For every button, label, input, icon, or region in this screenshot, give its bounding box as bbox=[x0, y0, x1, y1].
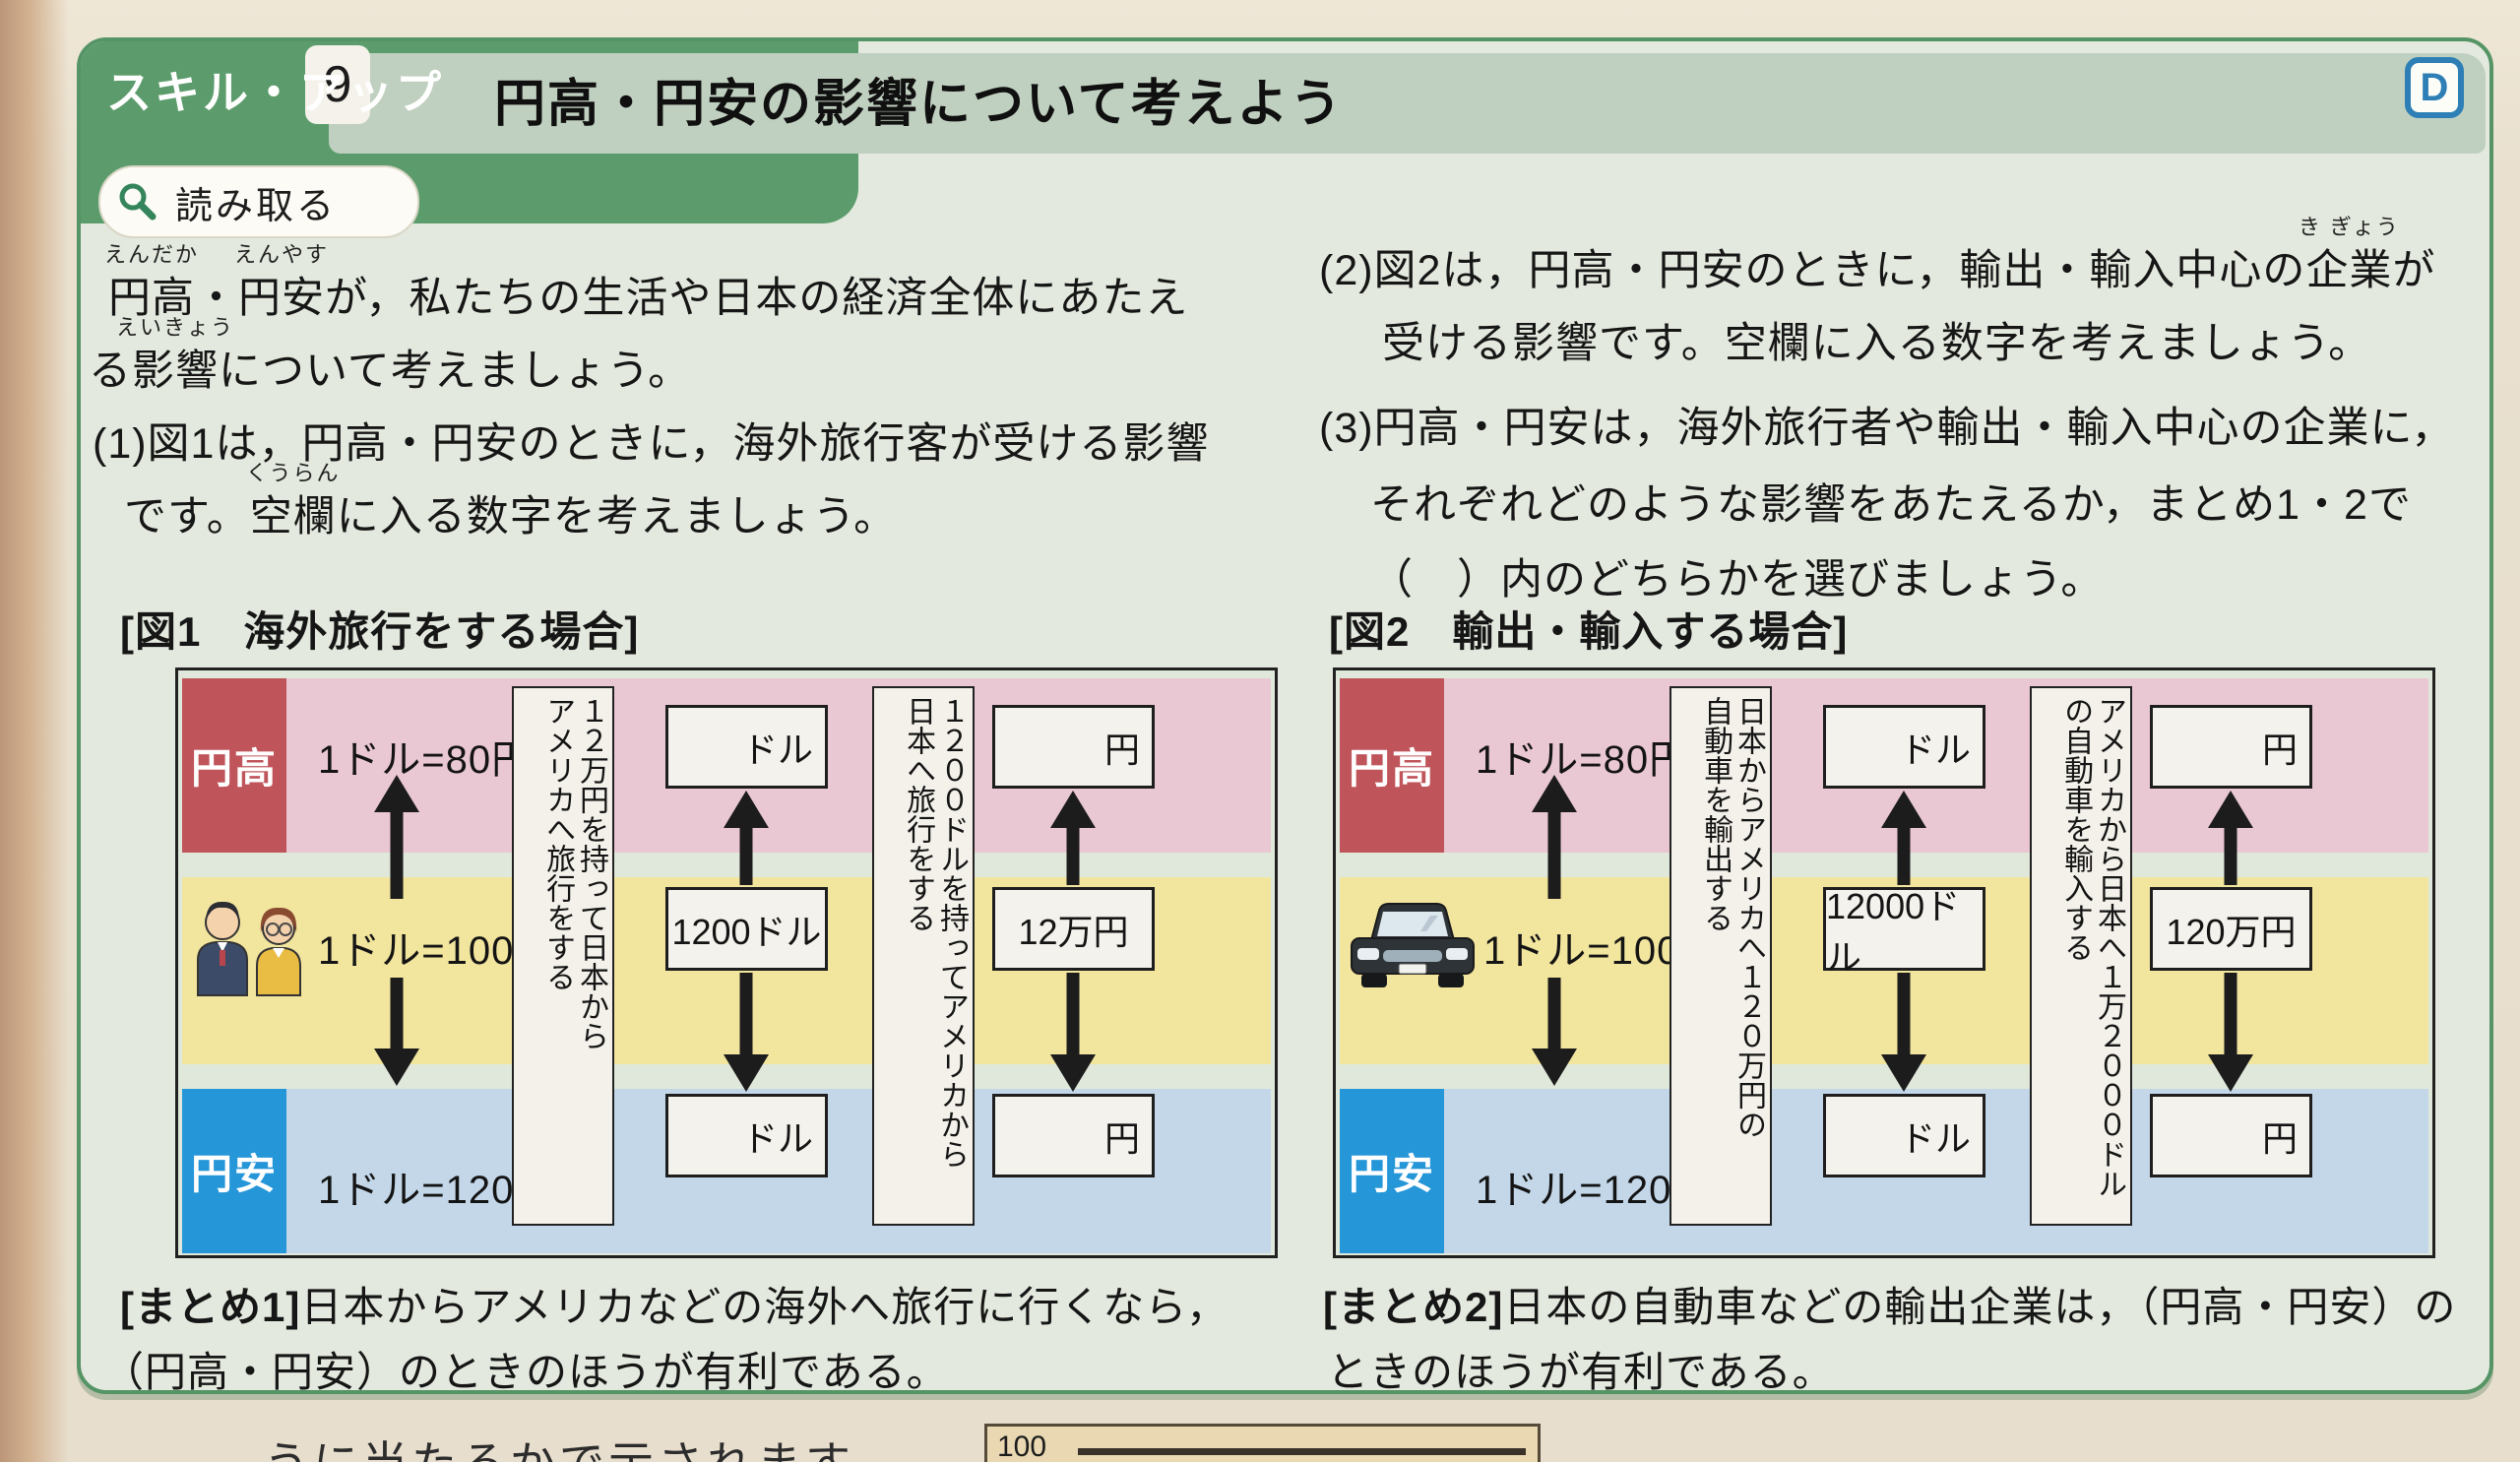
digital-content-letter: D bbox=[2421, 66, 2449, 110]
fig2-yen-blank-high: 円 bbox=[2150, 705, 2312, 789]
page-edge-shadow bbox=[0, 0, 69, 1462]
down-arrow-icon bbox=[374, 978, 419, 1086]
summary1-tag: [まとめ1] bbox=[120, 1284, 300, 1330]
summary2-line-1: [まとめ2]日本の自動車などの輸出企業は，（円高・円安）の bbox=[1323, 1274, 2456, 1334]
fig1-yen-blank-low: 円 bbox=[992, 1094, 1155, 1177]
fig2-yen-low-label: 円安 bbox=[1340, 1089, 1444, 1253]
fig1-yen-low-label: 円安 bbox=[182, 1089, 286, 1253]
skill-up-panel: 9 スキル・アップ 円高・円安の影響について考えよう 読み取る D えんだか円高… bbox=[77, 37, 2493, 1394]
ruby-kigyou: き ぎょう企業 bbox=[2305, 236, 2392, 297]
fig2-rate-80: 1ドル=80円 bbox=[1476, 728, 1689, 785]
page-title: 円高・円安の影響について考えよう bbox=[494, 53, 1343, 154]
summary1-line-2: （円高・円安）のときのほうが有利である。 bbox=[102, 1339, 949, 1399]
fig1-strip2-col2: 日本へ旅行をする bbox=[902, 696, 932, 1216]
fig1-dollar-blank-high: ドル bbox=[665, 705, 828, 789]
fig2-strip2-col1: アメリカから日本へ１万２０００ドル bbox=[2093, 696, 2123, 1216]
fig1-outbound-trip-strip: １２万円を持って日本から アメリカへ旅行をする bbox=[512, 686, 614, 1226]
digital-content-icon: D bbox=[2405, 57, 2464, 118]
ruby-kuuran: くうらん空欄 bbox=[250, 482, 337, 543]
magnifier-icon bbox=[116, 180, 159, 223]
question2-line-1: (2)図2は，円高・円安のときに，輸出・輸入中心のき ぎょう企業が bbox=[1319, 236, 2435, 297]
ruby-eikyou: えいきょう影響 bbox=[132, 337, 219, 398]
fig2-dollar-blank-high: ドル bbox=[1823, 705, 1985, 789]
fig1-yen-blank-high: 円 bbox=[992, 705, 1155, 789]
read-tool-pill: 読み取る bbox=[98, 165, 419, 238]
cutoff-chart-fragment: 100 bbox=[984, 1424, 1541, 1462]
question3-line-3: （ ）内のどちらかを選びましょう。 bbox=[1370, 545, 2104, 606]
car-illustration bbox=[1344, 899, 1481, 992]
chart-axis-label: 100 bbox=[997, 1430, 1046, 1462]
fig1-strip1-col1: １２万円を持って日本から bbox=[575, 696, 605, 1216]
fig1-yen-high-label: 円高 bbox=[182, 678, 286, 853]
figure1-heading: [図1 海外旅行をする場合] bbox=[120, 599, 639, 659]
down-arrow-icon bbox=[1881, 973, 1926, 1092]
fig2-dollar-blank-low: ドル bbox=[1823, 1094, 1985, 1177]
fig1-strip2-col1: １２００ドルを持ってアメリカから bbox=[935, 696, 966, 1216]
figure2-heading: [図2 輸出・輸入する場合] bbox=[1329, 599, 1848, 659]
figure2-exchange-diagram: 円高 円安 1ドル=80円 1ドル=100円 1ドル=120円 日本からアメリカ bbox=[1333, 667, 2435, 1258]
intro-line-2: るえいきょう影響について考えましょう。 bbox=[89, 337, 691, 398]
fig2-export-strip: 日本からアメリカへ１２０万円の 自動車を輸出する bbox=[1669, 686, 1772, 1226]
fig2-yen-value-mid: 120万円 bbox=[2150, 887, 2312, 971]
fig2-yen-high-label: 円高 bbox=[1340, 678, 1444, 853]
question3-line-2: それぞれどのような影響をあたえるか，まとめ1・2で bbox=[1370, 471, 2412, 532]
up-arrow-icon bbox=[724, 791, 769, 885]
intro-line-1: えんだか円高・えんやす円安が，私たちの生活や日本の経済全体にあたえ bbox=[108, 264, 1188, 325]
down-arrow-icon bbox=[1050, 973, 1096, 1092]
fig2-import-strip: アメリカから日本へ１万２０００ドル の自動車を輸入する bbox=[2030, 686, 2132, 1226]
summary1-line-1: [まとめ1]日本からアメリカなどの海外へ旅行に行くなら， bbox=[120, 1274, 1228, 1334]
skill-up-badge: スキル・アップ bbox=[106, 57, 444, 122]
chart-gridline bbox=[1078, 1448, 1526, 1455]
down-arrow-icon bbox=[724, 973, 769, 1092]
summary2-tag: [まとめ2] bbox=[1323, 1284, 1503, 1330]
down-arrow-icon bbox=[2208, 973, 2253, 1092]
fig1-dollar-value-mid: 1200ドル bbox=[665, 887, 828, 971]
up-arrow-icon bbox=[1881, 791, 1926, 885]
figure1-exchange-diagram: 円高 円安 1ドル=80円 1ドル=100円 1ドル=120円 bbox=[175, 667, 1278, 1258]
summary2-line-2: ときのほうが有利である。 bbox=[1327, 1339, 1835, 1399]
fig1-yen-value-mid: 12万円 bbox=[992, 887, 1155, 971]
fig2-strip2-col2: の自動車を輸入する bbox=[2059, 696, 2090, 1216]
up-arrow-icon bbox=[1050, 791, 1096, 885]
fig2-strip1-col1: 日本からアメリカへ１２０万円の bbox=[1732, 696, 1763, 1216]
question1-line-2: です。くうらん空欄に入る数字を考えましょう。 bbox=[124, 482, 897, 543]
fig1-dollar-blank-low: ドル bbox=[665, 1094, 828, 1177]
down-arrow-icon bbox=[1532, 978, 1577, 1086]
cutoff-body-text: うに当たるかで示されます bbox=[264, 1428, 854, 1462]
read-tool-label: 読み取る bbox=[175, 175, 337, 229]
travelers-couple-illustration bbox=[190, 893, 313, 996]
fig2-dollar-value-mid: 12000ドル bbox=[1823, 887, 1985, 971]
fig1-strip1-col2: アメリカへ旅行をする bbox=[541, 696, 572, 1216]
fig2-strip1-col2: 自動車を輸出する bbox=[1699, 696, 1730, 1216]
up-arrow-icon bbox=[374, 775, 419, 899]
fig1-rate-80: 1ドル=80円 bbox=[318, 728, 532, 785]
textbook-page-photo: 9 スキル・アップ 円高・円安の影響について考えよう 読み取る D えんだか円高… bbox=[0, 0, 2520, 1462]
question2-line-2: 受ける影響です。空欄に入る数字を考えましょう。 bbox=[1382, 309, 2371, 370]
up-arrow-icon bbox=[1532, 775, 1577, 899]
question3-line-1: (3)円高・円安は，海外旅行者や輸出・輸入中心の企業に， bbox=[1319, 394, 2454, 455]
fig1-inbound-trip-strip: １２００ドルを持ってアメリカから 日本へ旅行をする bbox=[872, 686, 975, 1226]
ruby-enyasu: えんやす円安 bbox=[238, 264, 325, 325]
up-arrow-icon bbox=[2208, 791, 2253, 885]
fig2-yen-blank-low: 円 bbox=[2150, 1094, 2312, 1177]
